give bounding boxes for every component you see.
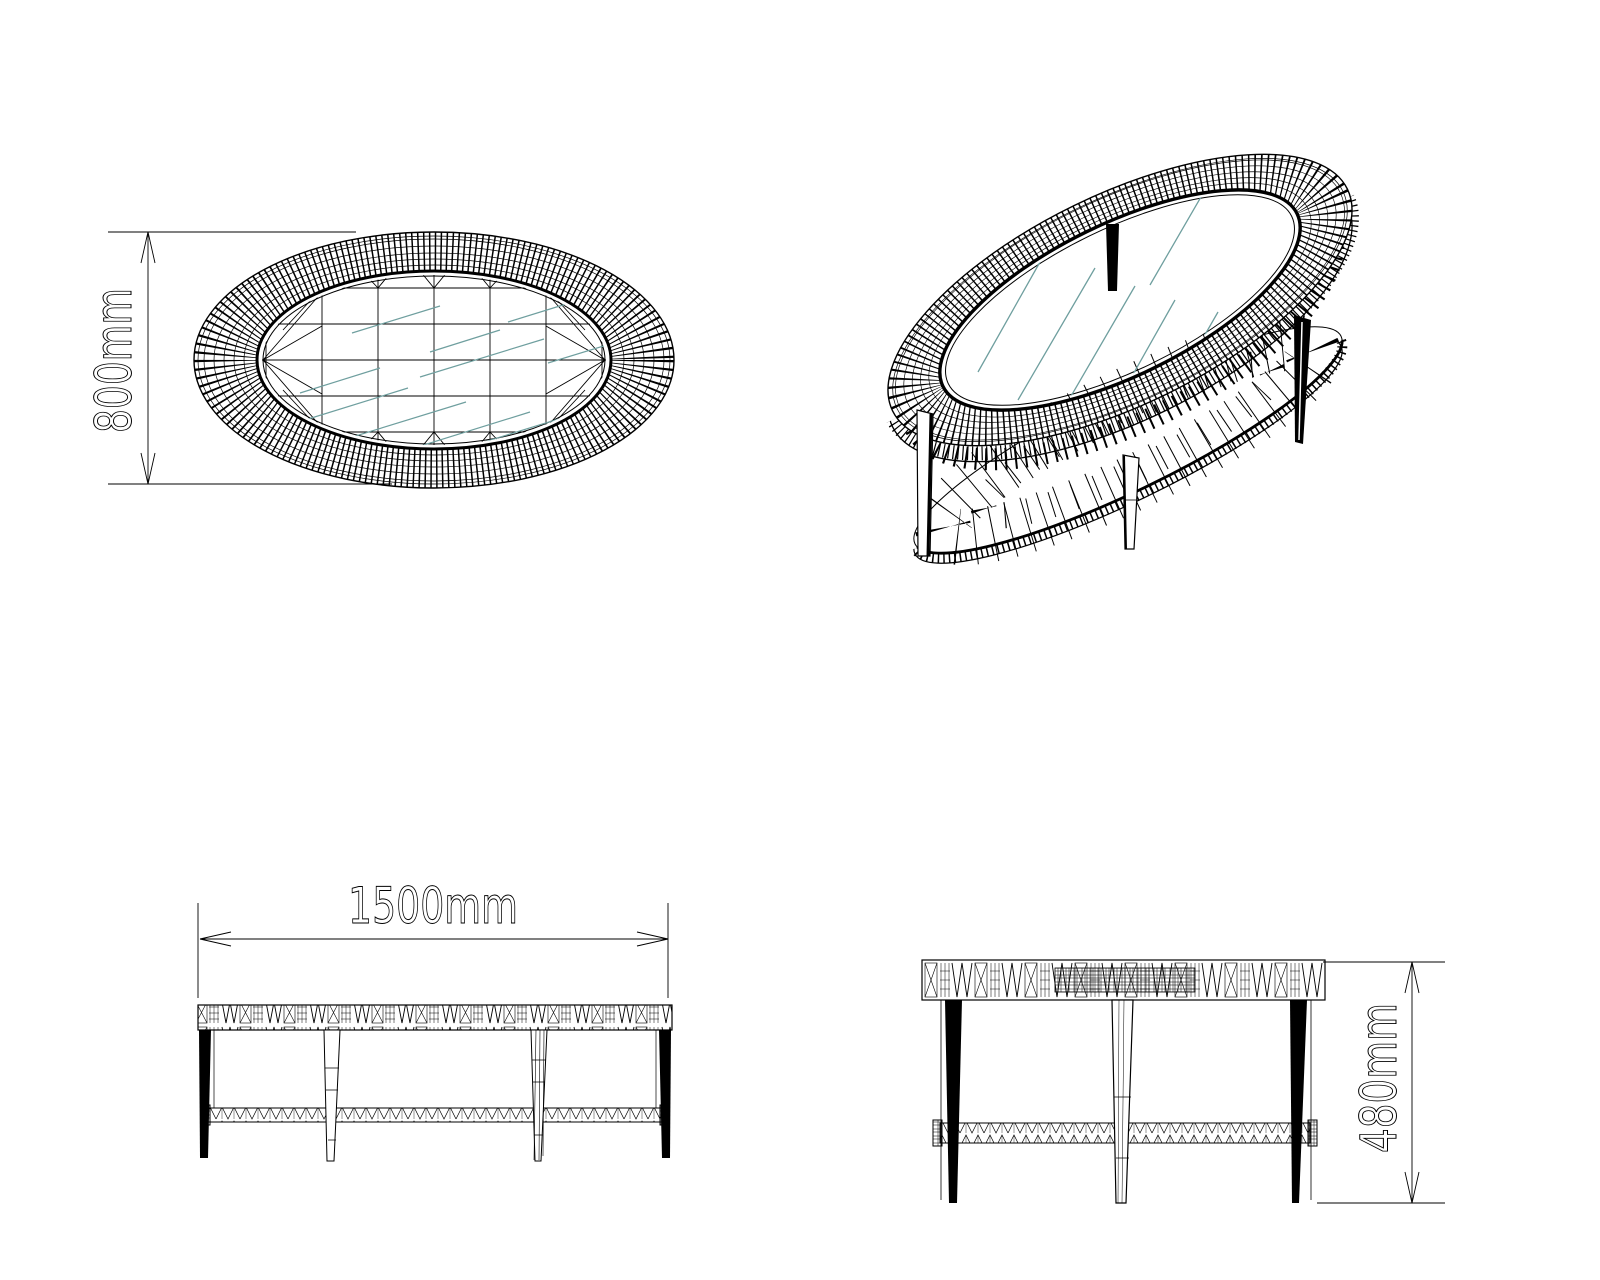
side-tabletop-grid-strip <box>1055 968 1195 992</box>
front-mid-leg-left <box>324 1030 340 1161</box>
iso-back-leg <box>1106 224 1119 291</box>
top-view: 800mm <box>85 232 674 488</box>
side-left-leg <box>945 1000 962 1203</box>
front-view: 1500mm <box>198 877 672 1161</box>
front-tabletop-band <box>198 1005 672 1030</box>
side-view: 480mm <box>922 960 1445 1203</box>
dimension-label-height: 480mm <box>1350 1003 1408 1153</box>
side-shelf-end-cap <box>1308 1120 1317 1146</box>
front-right-leg <box>659 1030 671 1158</box>
dimension-label-depth: 800mm <box>85 288 143 433</box>
front-legs <box>199 1030 671 1161</box>
side-legs <box>941 1000 1311 1203</box>
isometric-view <box>840 95 1400 599</box>
dimension-label-width: 1500mm <box>348 877 518 935</box>
cad-drawing-page: 800mm <box>0 0 1600 1280</box>
cad-drawing: 800mm <box>0 0 1600 1280</box>
side-right-leg <box>1290 1000 1307 1203</box>
front-shelf-band <box>207 1108 663 1122</box>
front-left-leg <box>199 1030 211 1158</box>
